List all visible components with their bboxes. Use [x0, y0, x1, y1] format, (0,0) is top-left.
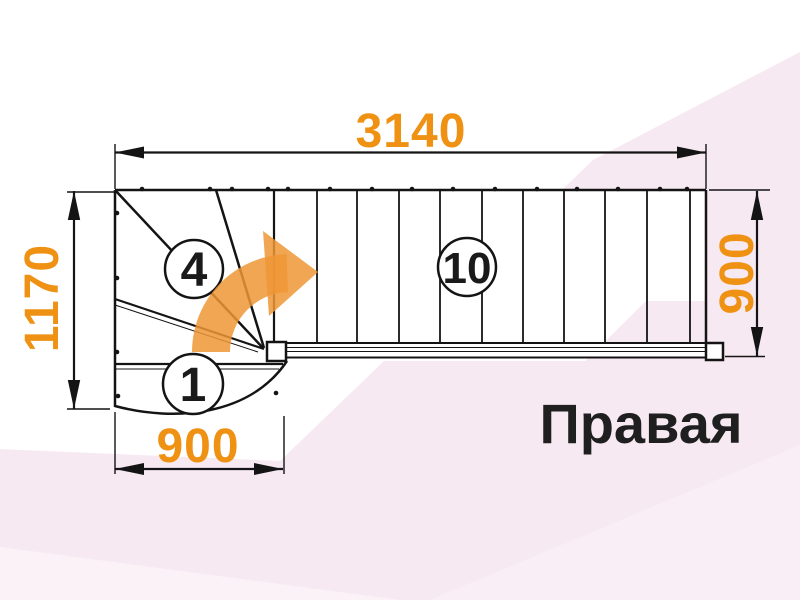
step-badge-4: 4 [165, 240, 223, 298]
handrail-band [286, 343, 706, 358]
step-number-1: 1 [180, 359, 207, 412]
dimension-value-left: 1170 [16, 244, 69, 352]
stair-plan-canvas: 4 10 1 3140 1170 900 [0, 0, 800, 600]
dimension-value-bottom: 900 [156, 420, 239, 473]
newel-post-left [267, 342, 286, 361]
step-number-4: 4 [181, 244, 208, 297]
orientation-label: Правая [539, 392, 742, 455]
dimension-value-right: 900 [711, 231, 764, 314]
step-badge-10: 10 [438, 238, 496, 296]
dimension-value-top: 3140 [356, 105, 467, 158]
newel-post-right [706, 343, 723, 360]
step-number-10: 10 [443, 244, 492, 293]
stair-plan-diagram: 4 10 1 3140 1170 900 [0, 0, 800, 600]
step-badge-1: 1 [163, 354, 223, 414]
handrail [286, 343, 706, 358]
